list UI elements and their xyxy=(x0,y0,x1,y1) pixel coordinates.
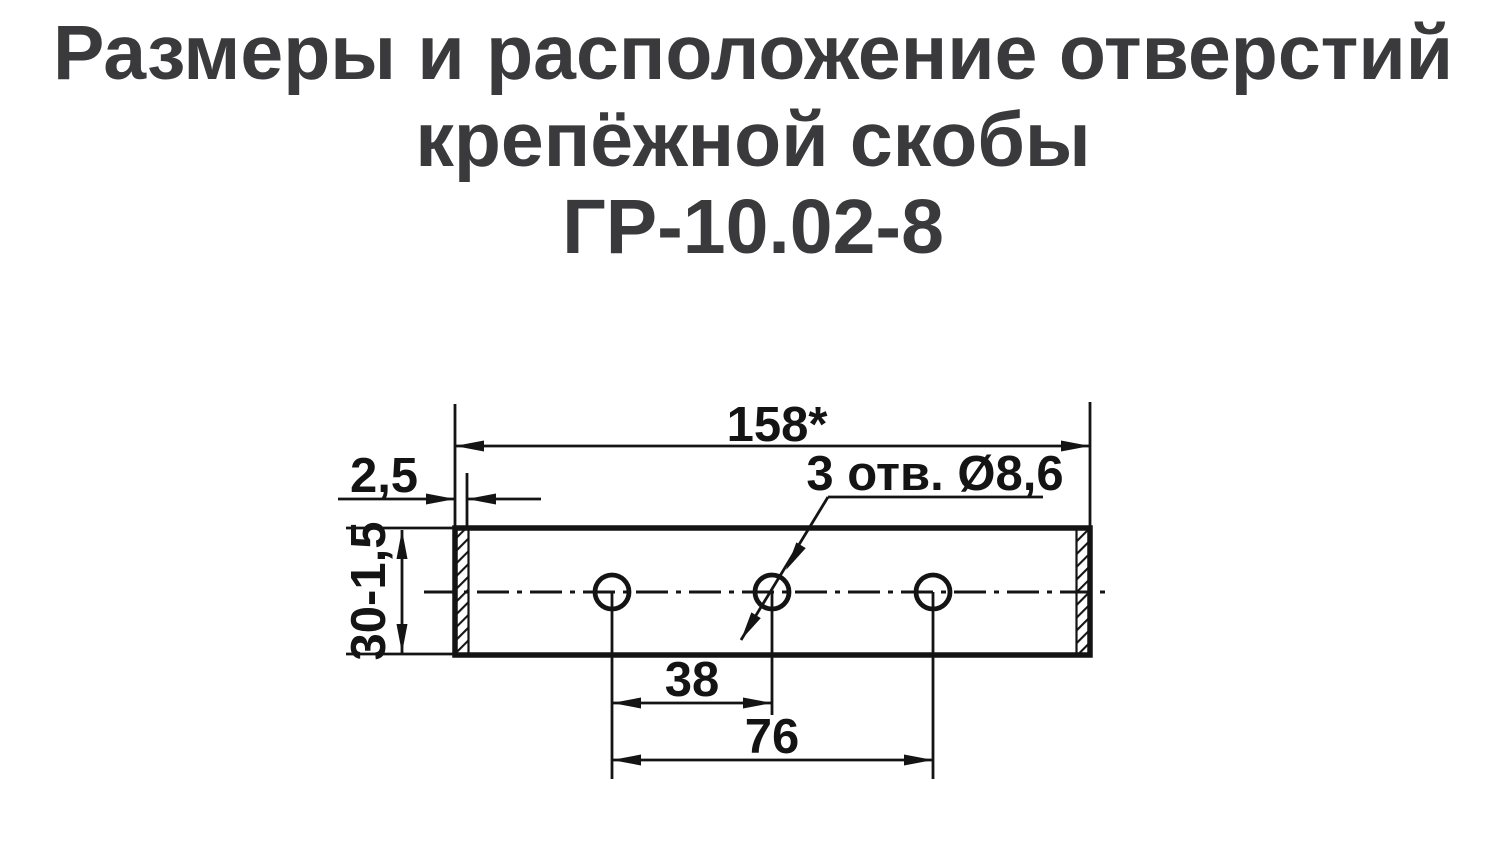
arrowhead xyxy=(467,494,496,505)
arrowhead xyxy=(736,612,760,642)
arrowhead xyxy=(904,755,933,766)
arrowhead xyxy=(743,698,772,709)
dimension-hole-span: 76 xyxy=(612,710,933,766)
dimension-label: 30-1,5 xyxy=(342,522,396,661)
arrowhead xyxy=(612,698,641,709)
dimension-label: 158* xyxy=(727,398,829,452)
dimension-label: 76 xyxy=(745,710,800,764)
dimension-hole-spacing: 38 xyxy=(612,653,772,709)
holes-note-label: 3 отв. Ø8,6 xyxy=(806,447,1063,501)
dimension-thickness: 2,5 xyxy=(338,449,541,528)
holes-callout: 3 отв. Ø8,6 xyxy=(736,447,1063,643)
arrowhead xyxy=(455,441,484,452)
page: Размеры и расположение отверстий крепёжн… xyxy=(0,0,1506,848)
dimension-label: 2,5 xyxy=(350,449,418,503)
arrowhead xyxy=(397,530,408,559)
dimension-label: 38 xyxy=(665,653,720,707)
arrowhead xyxy=(426,494,455,505)
technical-drawing: 158* 2,5 30-1,5 3 отв. Ø8,6 xyxy=(0,0,1506,848)
arrowhead xyxy=(612,755,641,766)
arrowhead xyxy=(397,624,408,653)
arrowhead xyxy=(1061,441,1090,452)
